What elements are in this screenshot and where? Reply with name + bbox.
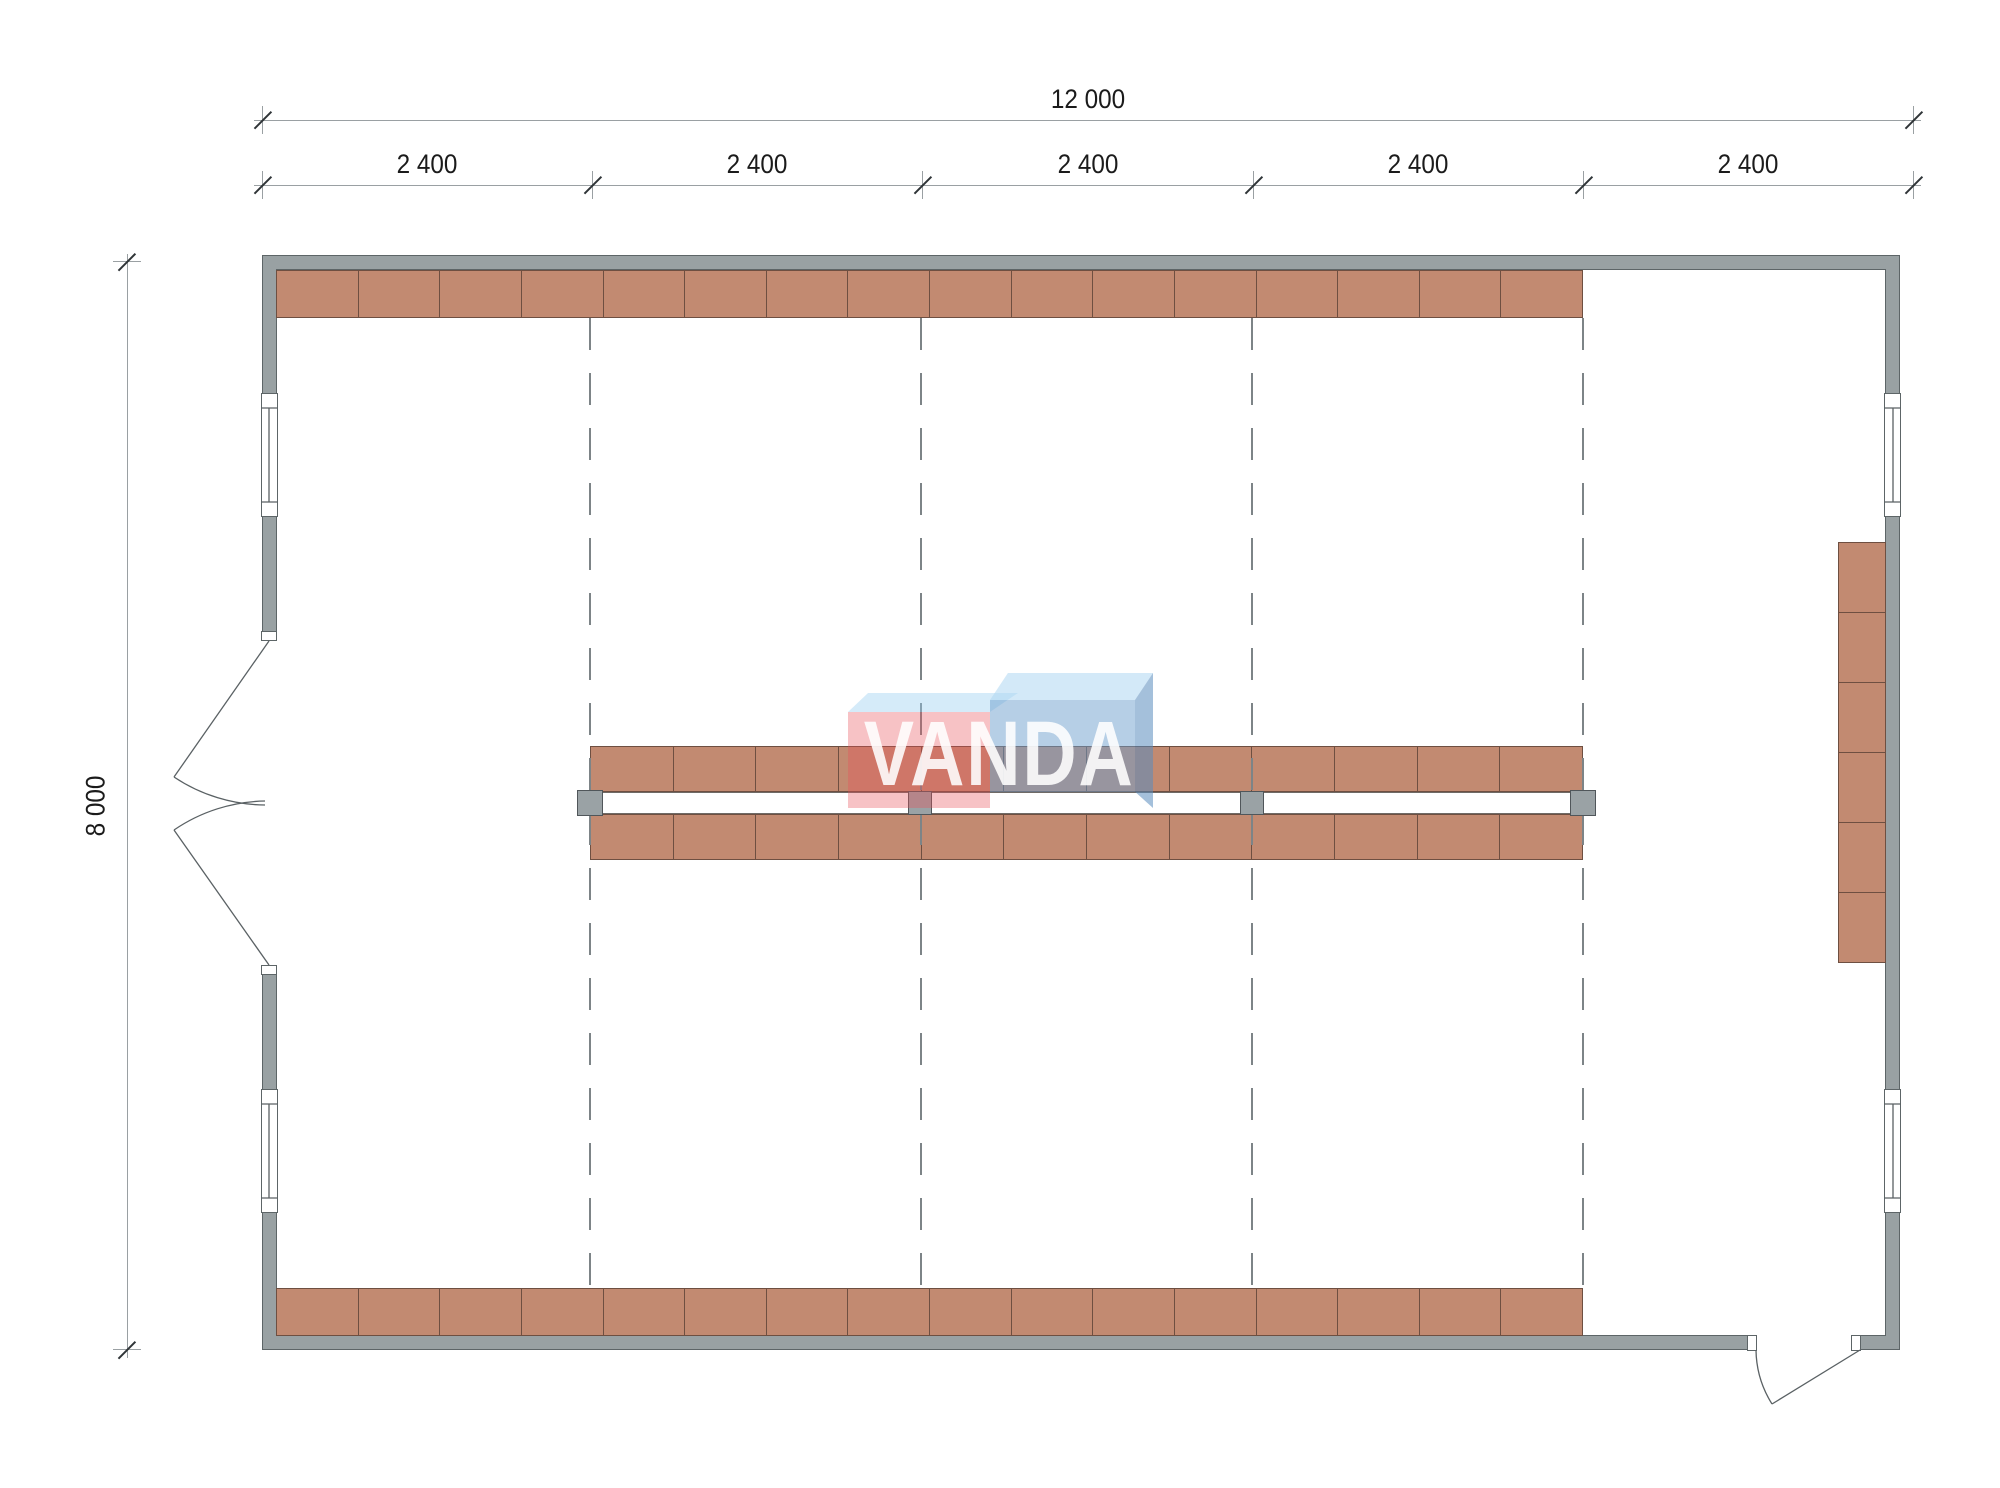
window-glazing	[261, 1104, 278, 1198]
door-swing-arc	[1756, 1350, 1772, 1404]
door-swing-arc	[174, 801, 265, 830]
window-glazing	[261, 408, 278, 502]
floor-plan-canvas: 12 000 2 400 2 400 2 400 2 400 2 400 8 0…	[0, 0, 2000, 1488]
door-leaf	[1772, 1350, 1860, 1404]
door-leaf	[174, 830, 269, 965]
door-leaf	[174, 641, 269, 777]
linework-overlay	[0, 0, 2000, 1488]
window-glazing	[1884, 408, 1901, 502]
door-swing-arc	[174, 777, 265, 805]
window-glazing	[1884, 1104, 1901, 1198]
